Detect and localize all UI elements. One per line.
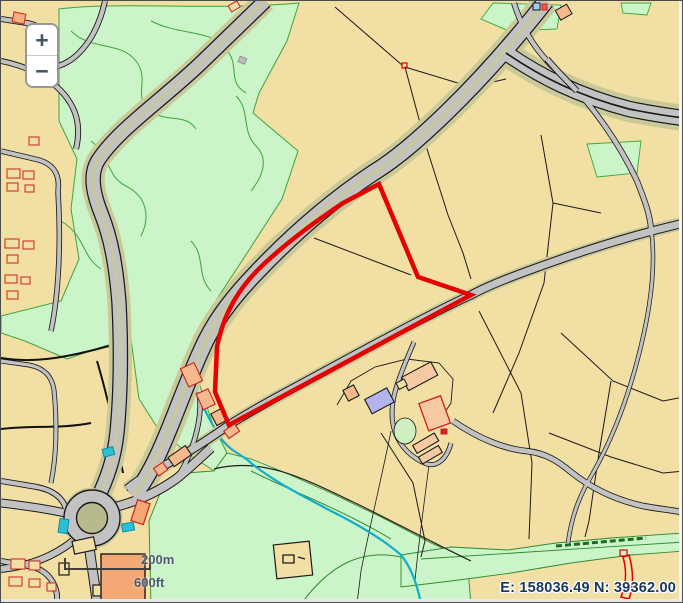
- pond-2: [121, 522, 134, 532]
- zoom-in-button[interactable]: +: [27, 25, 57, 56]
- zoom-out-button[interactable]: −: [27, 56, 57, 86]
- building-sw-5: [47, 583, 56, 591]
- pond-3: [58, 519, 69, 534]
- scale-bar-line: [64, 568, 151, 570]
- building-row-1d: [25, 185, 34, 192]
- building-sw-1: [11, 559, 25, 569]
- building-hamlet-red-dot: [441, 429, 447, 434]
- building-row-0: [29, 137, 39, 145]
- building-topright-2: [533, 3, 540, 10]
- building-row-3b: [21, 277, 30, 284]
- building-row-2b: [23, 241, 34, 249]
- map-edge-right: [679, 1, 682, 602]
- building-row-2c: [7, 255, 18, 263]
- roundabout-center: [77, 503, 108, 534]
- map-canvas[interactable]: [1, 1, 683, 603]
- green-patch-topright-3: [621, 3, 651, 15]
- map-viewer-window: + − 200m 600ft E: 158036.49 N: 39362.00: [0, 0, 683, 603]
- building-row-1c: [7, 183, 18, 191]
- building-row-2a: [5, 239, 19, 248]
- building-topleft: [12, 12, 26, 24]
- building-row-1a: [7, 169, 20, 178]
- scale-imperial-label: 600ft: [134, 575, 164, 590]
- zoom-control: + −: [25, 23, 59, 88]
- enclosure-bottom-green: [273, 541, 312, 579]
- building-topright-3: [542, 4, 547, 10]
- scale-bar-tick-left: [64, 558, 66, 569]
- hamlet-green-patch: [394, 418, 416, 444]
- building-row-3c: [7, 291, 18, 299]
- building-sw-4: [29, 579, 40, 587]
- building-row-1b: [23, 171, 34, 179]
- coordinate-readout: E: 158036.49 N: 39362.00: [500, 580, 676, 596]
- building-row-3a: [5, 275, 17, 283]
- scale-metric-label: 200m: [141, 552, 174, 567]
- scale-bar: 200m 600ft: [64, 551, 184, 597]
- map-edge-bottom: [1, 599, 682, 602]
- building-sw-2: [29, 561, 40, 570]
- building-sw-3: [9, 577, 22, 586]
